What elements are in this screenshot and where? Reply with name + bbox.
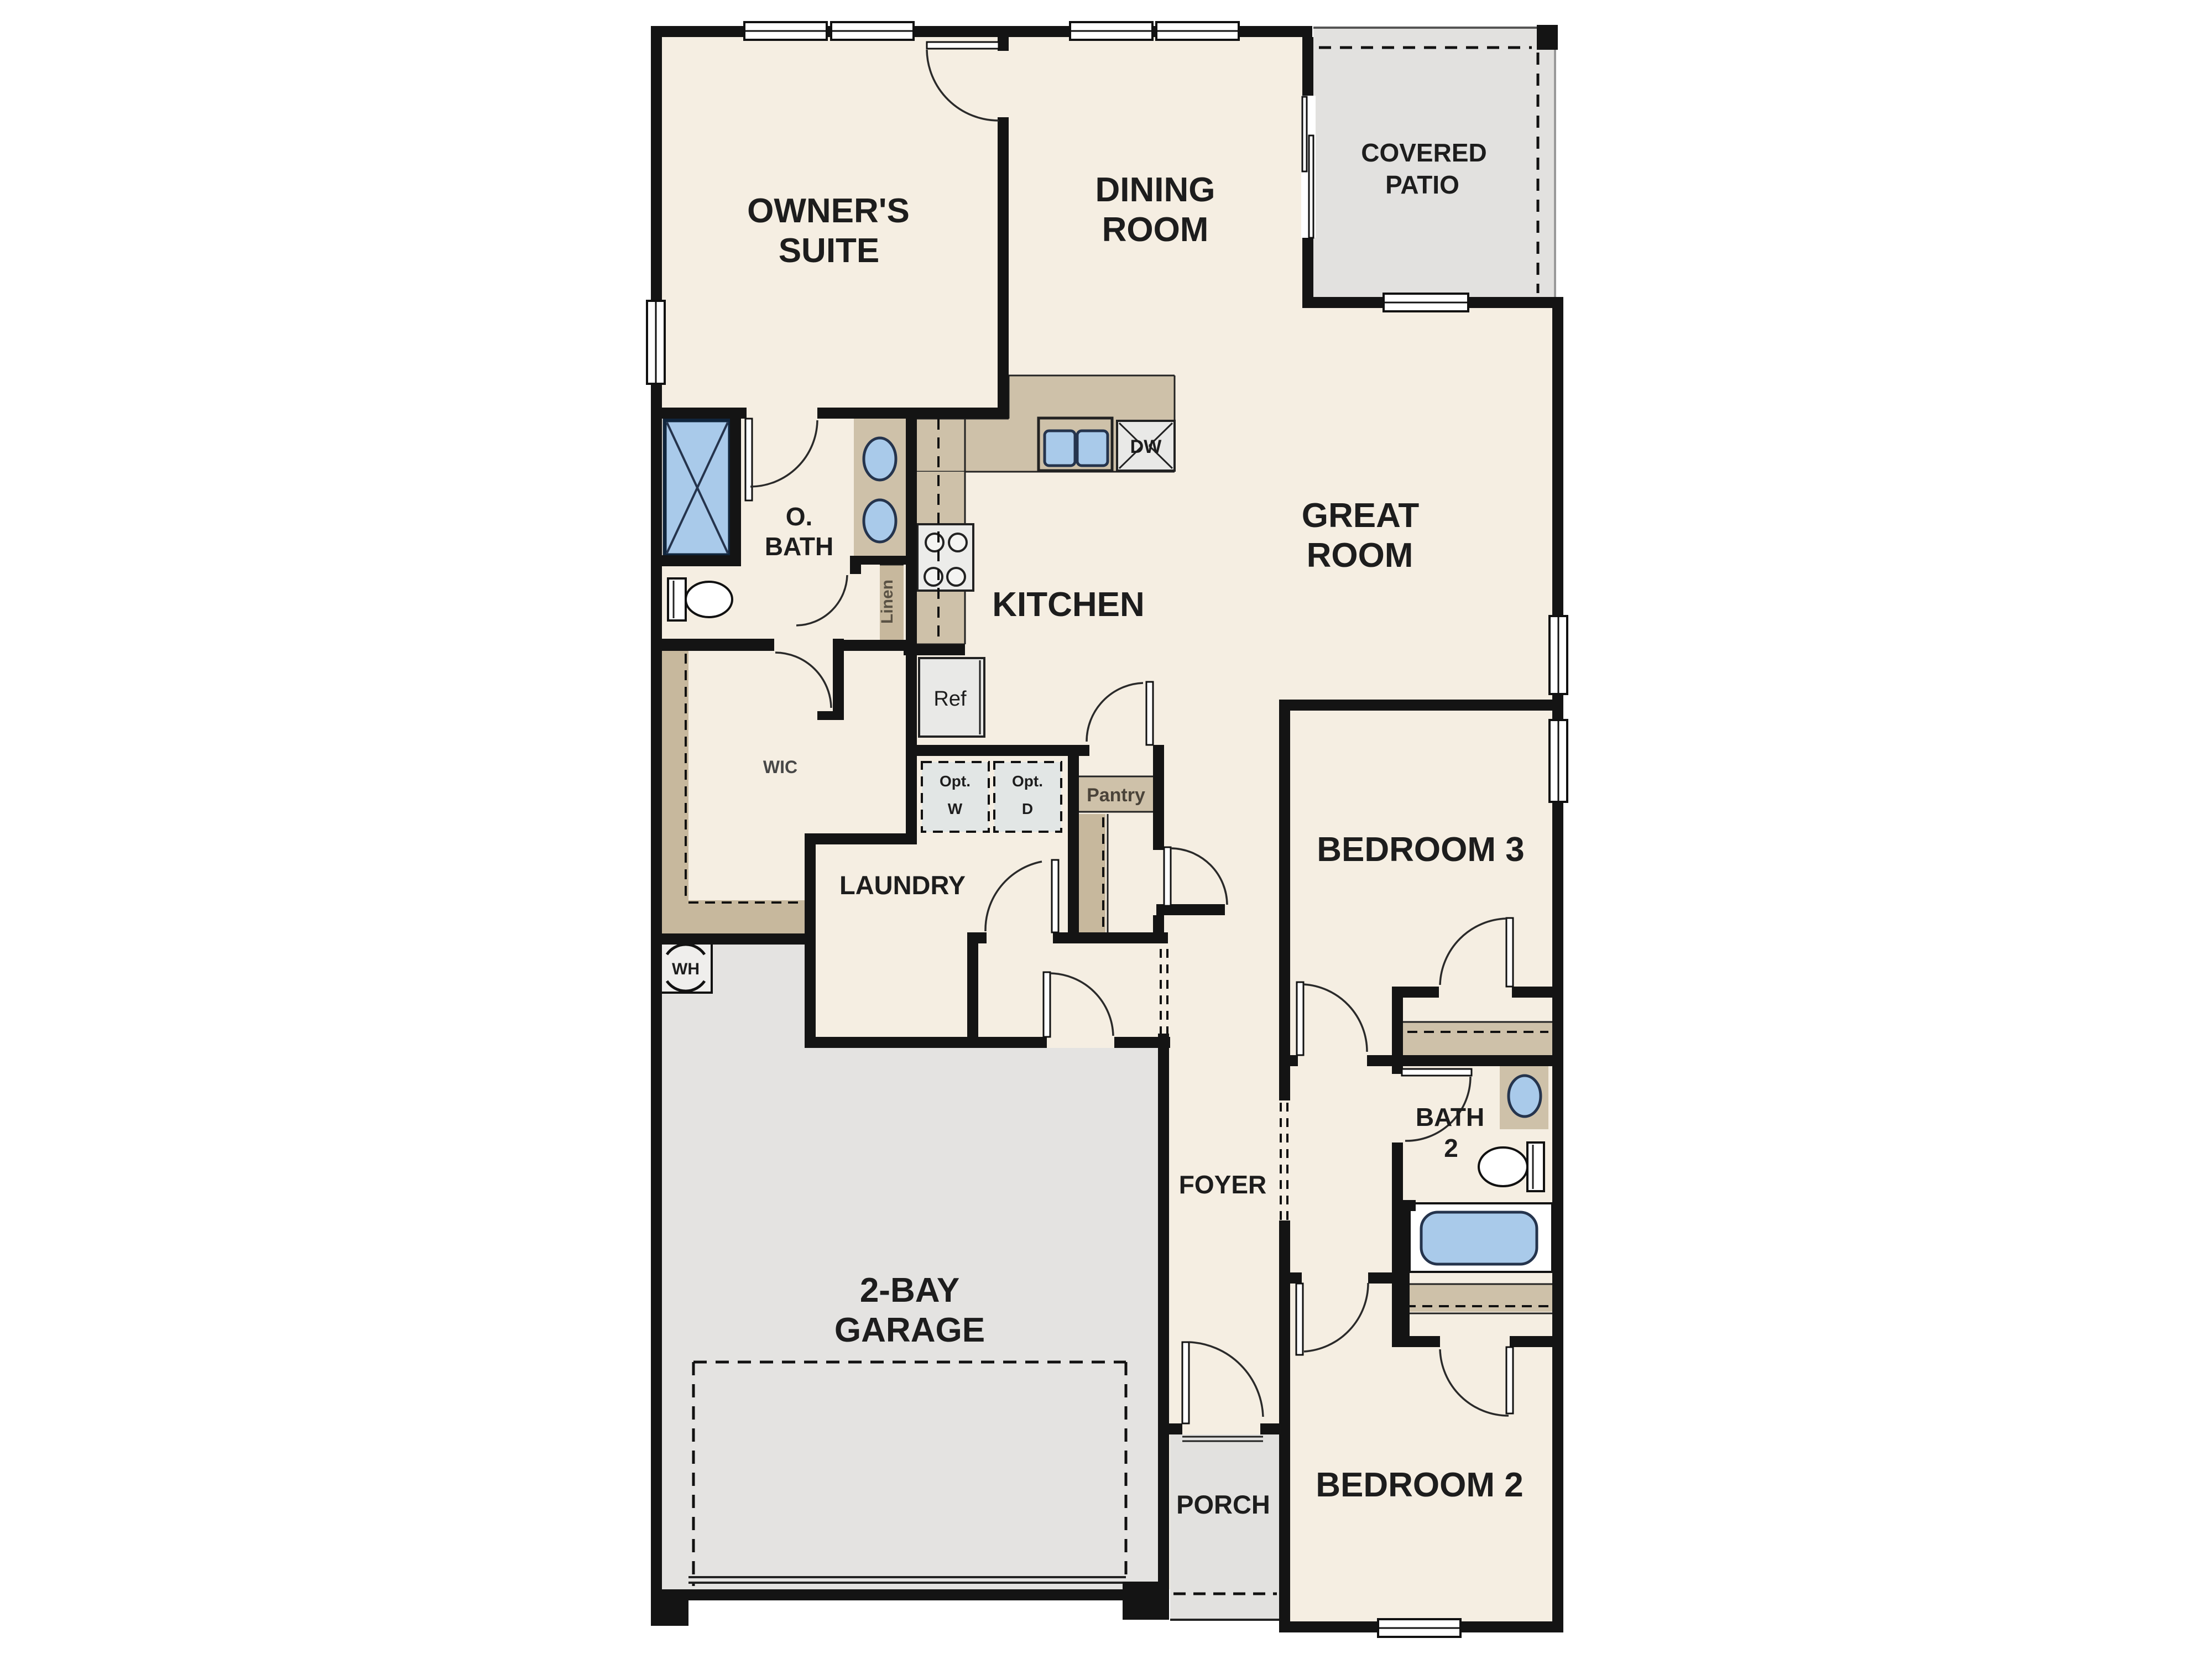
svg-text:PATIO: PATIO — [1385, 170, 1459, 199]
svg-text:COVERED: COVERED — [1361, 138, 1486, 167]
svg-text:Ref: Ref — [933, 687, 967, 711]
svg-text:WH: WH — [672, 960, 700, 978]
svg-text:ROOM: ROOM — [1102, 211, 1209, 249]
svg-text:O.: O. — [786, 502, 813, 531]
svg-text:2-BAY: 2-BAY — [860, 1271, 959, 1310]
svg-text:OWNER'S: OWNER'S — [747, 192, 910, 230]
svg-text:PORCH: PORCH — [1176, 1490, 1270, 1519]
svg-text:SUITE: SUITE — [779, 232, 880, 270]
svg-text:BEDROOM 3: BEDROOM 3 — [1317, 831, 1524, 869]
svg-text:D: D — [1022, 800, 1033, 817]
svg-text:WIC: WIC — [763, 757, 797, 777]
svg-text:DINING: DINING — [1095, 171, 1215, 209]
svg-text:2: 2 — [1444, 1134, 1458, 1162]
svg-text:LAUNDRY: LAUNDRY — [839, 870, 966, 900]
svg-text:Linen: Linen — [878, 580, 896, 624]
svg-text:Opt.: Opt. — [1012, 773, 1043, 790]
svg-text:BATH: BATH — [1416, 1103, 1484, 1131]
svg-text:Opt.: Opt. — [940, 773, 971, 790]
svg-text:ROOM: ROOM — [1307, 536, 1413, 575]
svg-text:BATH: BATH — [765, 532, 833, 561]
svg-text:GREAT: GREAT — [1302, 497, 1420, 535]
svg-text:KITCHEN: KITCHEN — [992, 586, 1145, 624]
svg-text:BEDROOM 2: BEDROOM 2 — [1316, 1466, 1523, 1504]
svg-text:DW: DW — [1130, 436, 1162, 457]
svg-text:Pantry: Pantry — [1087, 785, 1145, 806]
svg-text:W: W — [948, 800, 963, 817]
svg-text:FOYER: FOYER — [1179, 1170, 1266, 1199]
svg-text:GARAGE: GARAGE — [834, 1311, 985, 1349]
